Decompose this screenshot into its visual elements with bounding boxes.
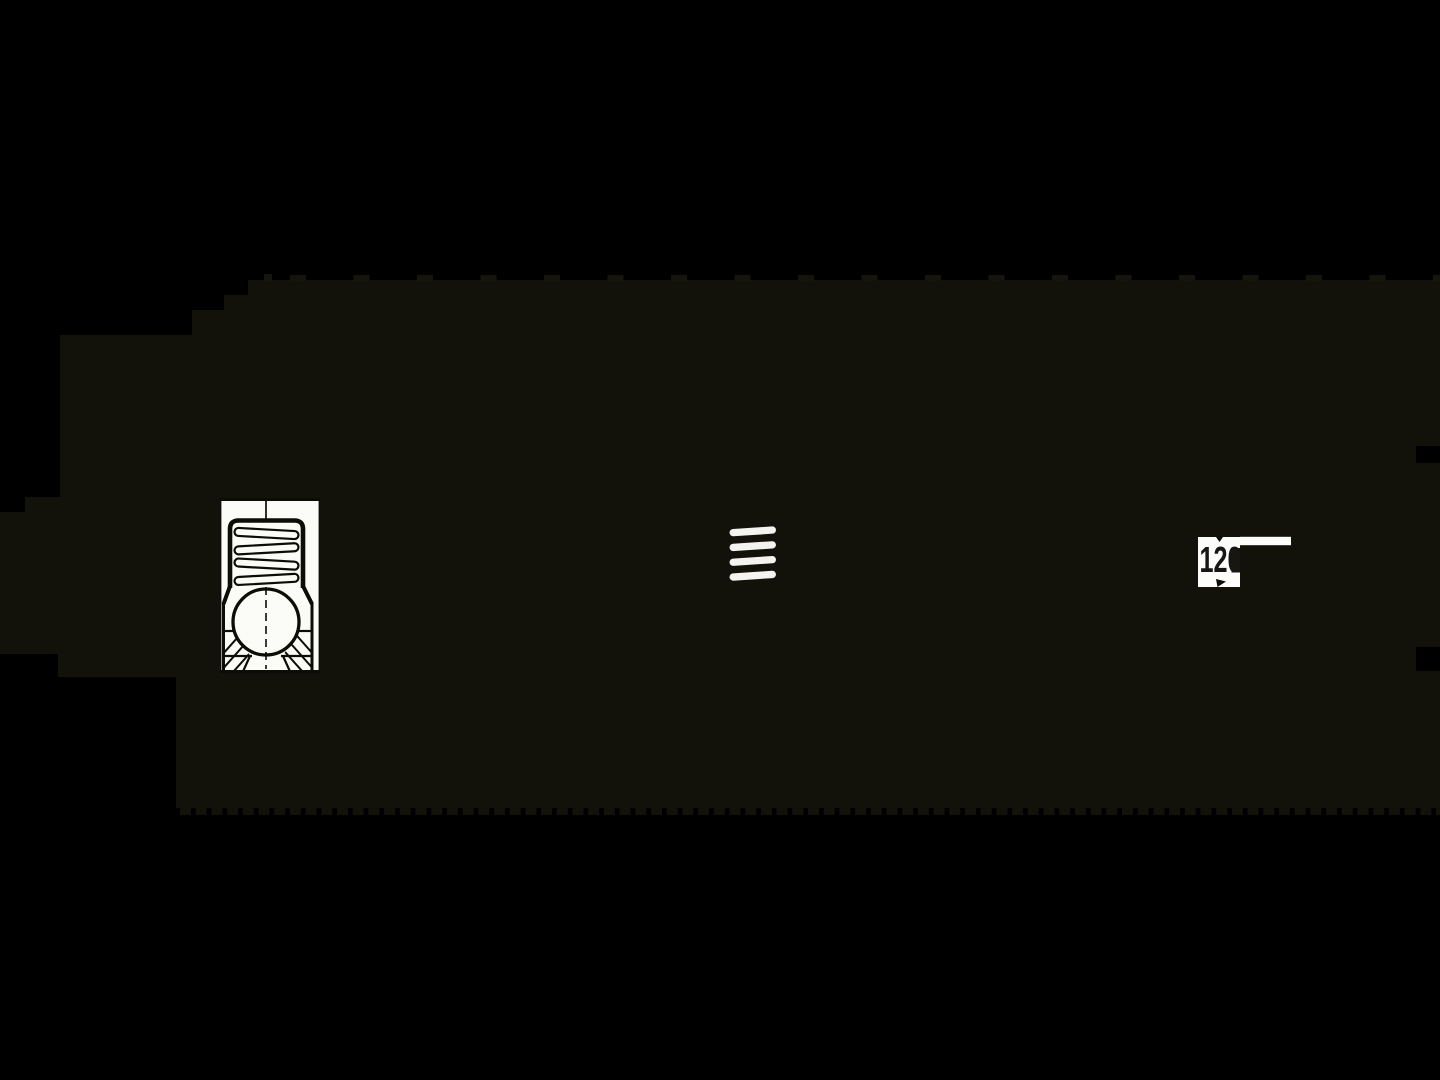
blob-tooth <box>243 807 254 815</box>
blob-tooth <box>1091 807 1102 815</box>
blob-tooth <box>1405 807 1416 815</box>
blob-tooth <box>1373 807 1384 815</box>
top-border-line <box>220 498 320 501</box>
blob-tooth <box>925 275 941 281</box>
blob-tooth <box>1201 807 1212 815</box>
blob-tooth <box>1232 807 1243 815</box>
blob-tooth <box>494 807 505 815</box>
blob-tooth <box>855 807 866 815</box>
blob-tooth <box>400 807 411 815</box>
blob-tooth <box>1306 275 1322 281</box>
blob-tooth <box>1052 275 1068 281</box>
blob-tooth <box>321 807 332 815</box>
right-border-line <box>319 498 320 673</box>
blob-tooth <box>290 275 306 281</box>
blob-tooth <box>698 807 709 815</box>
blob-tooth <box>573 807 584 815</box>
blob-tooth <box>608 275 624 281</box>
blob-tooth <box>431 807 442 815</box>
blob-tooth <box>761 807 772 815</box>
blob-tooth <box>259 807 270 815</box>
blob-tooth <box>798 275 814 281</box>
blob-tooth <box>620 807 631 815</box>
blob-tooth <box>1153 807 1164 815</box>
blob-tooth <box>1044 807 1055 815</box>
blob-tooth <box>1436 807 1440 815</box>
blob-tooth <box>290 807 301 815</box>
blob-tooth <box>1216 807 1227 815</box>
blob-tooth <box>671 275 687 281</box>
blob-tooth <box>196 807 207 815</box>
blob-tooth <box>989 275 1005 281</box>
blob-tooth <box>306 807 317 815</box>
blob-tooth <box>1358 807 1369 815</box>
blob-tooth <box>714 807 725 815</box>
blob-tooth <box>1075 807 1086 815</box>
blob-tooth <box>745 807 756 815</box>
blob-tooth <box>274 807 285 815</box>
blob-tooth <box>384 807 395 815</box>
blob-tooth <box>478 807 489 815</box>
blob-overlay-on-digit <box>1232 548 1241 573</box>
blob-tooth <box>902 807 913 815</box>
blob-tooth <box>667 807 678 815</box>
blob-tooth <box>871 807 882 815</box>
canvas: 120 <box>0 0 1440 1080</box>
blob-tooth <box>949 807 960 815</box>
blob-tooth <box>227 807 238 815</box>
blob-tooth <box>353 807 364 815</box>
blob-tooth <box>1179 275 1195 281</box>
blob-tooth <box>211 807 222 815</box>
ball-plunger-cross-section-drawing <box>214 498 322 696</box>
blob-tooth <box>862 275 878 281</box>
blob-tooth <box>1279 807 1290 815</box>
blob-tooth <box>1342 807 1353 815</box>
blob-tooth <box>1420 807 1431 815</box>
blob-tooth <box>541 807 552 815</box>
blob-tooth <box>557 807 568 815</box>
leader-line-halo <box>1240 537 1291 545</box>
blob-tooth <box>1248 807 1259 815</box>
blob-tooth <box>1059 807 1070 815</box>
blob-tooth <box>447 807 458 815</box>
blob-tooth <box>730 807 741 815</box>
blob-tooth <box>635 807 646 815</box>
blob-tooth <box>1012 807 1023 815</box>
blob-tooth <box>934 807 945 815</box>
left-border-line <box>220 498 221 673</box>
blob-tooth <box>1295 807 1306 815</box>
blob-tooth <box>1326 807 1337 815</box>
blob-tooth <box>1169 807 1180 815</box>
blob-tooth <box>544 275 560 281</box>
blob-tooth <box>604 807 615 815</box>
blob-tooth <box>1389 807 1400 815</box>
blob-tooth <box>337 807 348 815</box>
blob-tooth <box>651 807 662 815</box>
blob-tooth <box>180 807 191 815</box>
blob-tooth <box>1433 275 1440 281</box>
blob-tooth <box>887 807 898 815</box>
blob-tooth <box>1310 807 1321 815</box>
blob-tooth <box>481 275 497 281</box>
blob-tooth <box>1243 275 1259 281</box>
blob-tooth <box>525 807 536 815</box>
blob-tooth <box>1185 807 1196 815</box>
blob-tooth <box>777 807 788 815</box>
blob-tooth <box>1122 807 1133 815</box>
blob-tooth <box>996 807 1007 815</box>
blob-tooth <box>1106 807 1117 815</box>
blob-tooth <box>981 807 992 815</box>
blob-tooth <box>368 807 379 815</box>
blob-tooth <box>735 275 751 281</box>
blob-tooth <box>682 807 693 815</box>
blob-tooth <box>1370 275 1386 281</box>
blob-tooth <box>1116 275 1132 281</box>
blob-tooth <box>808 807 819 815</box>
blob-tooth <box>463 807 474 815</box>
blob-tooth <box>588 807 599 815</box>
blob-tooth <box>417 275 433 281</box>
blob-tooth <box>1138 807 1149 815</box>
blob-tooth <box>792 807 803 815</box>
blob-tooth <box>965 807 976 815</box>
blob-tooth <box>1263 807 1274 815</box>
blob-tooth <box>839 807 850 815</box>
blob-tooth <box>264 274 272 281</box>
blob-tooth <box>918 807 929 815</box>
blob-tooth <box>824 807 835 815</box>
blob-tooth <box>354 275 370 281</box>
blob-tooth <box>1028 807 1039 815</box>
blob-tooth <box>416 807 427 815</box>
blob-tooth <box>510 807 521 815</box>
